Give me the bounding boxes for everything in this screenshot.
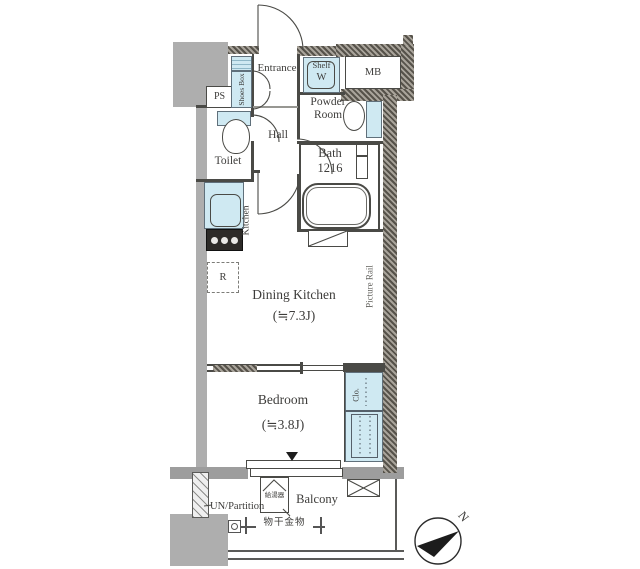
- room-label-toilet: Toilet: [206, 155, 250, 168]
- bath-door-diagonal: [309, 231, 347, 246]
- label-washing-machine: W: [304, 72, 339, 84]
- room-label-shoes-box: Shoes Box: [236, 61, 247, 118]
- powder-room-line2: Room: [299, 109, 357, 122]
- room-label-ps: PS: [206, 86, 233, 108]
- room-label-balcony: Balcony: [290, 492, 344, 506]
- floor-plan-canvas: PS Entrance Shoes Box Shelf W MB Powder …: [0, 0, 640, 569]
- window-center-marker: [286, 452, 298, 461]
- entrance-door-arc: [258, 5, 303, 50]
- room-label-powder-room: Powder Room: [299, 96, 357, 122]
- room-label-bath: Bath 1216: [302, 146, 358, 176]
- water-heater-chevron: [263, 480, 286, 491]
- room-label-hall: Hall: [258, 129, 298, 142]
- room-label-closet: Clo.: [352, 380, 362, 411]
- plan-symbols-overlay: [0, 0, 640, 569]
- hall-dk-door-arc: [258, 172, 300, 214]
- shoes-box-door-arc: [252, 91, 270, 109]
- room-label-dining-kitchen: Dining Kitchen: [233, 287, 355, 303]
- compass: [415, 518, 461, 564]
- label-laundry-fitting: 物干金物: [256, 518, 313, 529]
- room-label-mb: MB: [345, 56, 401, 89]
- bath-line1: Bath: [302, 146, 358, 161]
- label-picture-rail: Picture Rail: [365, 241, 376, 333]
- room-label-bedroom: Bedroom: [222, 392, 344, 408]
- room-label-kitchen: Kitchen: [242, 195, 253, 247]
- bedroom-area: (≒3.8J): [222, 417, 344, 433]
- closet-hanger-lines: [360, 378, 370, 454]
- dining-kitchen-area: (≒7.3J): [233, 308, 355, 324]
- room-label-entrance: Entrance: [251, 62, 303, 75]
- label-shelf: Shelf: [304, 61, 339, 71]
- label-water-heater: 給湯器: [260, 492, 289, 499]
- powder-room-line1: Powder: [299, 96, 357, 109]
- label-un-partition: UN/Partition: [210, 501, 290, 513]
- bath-line2: 1216: [302, 161, 358, 176]
